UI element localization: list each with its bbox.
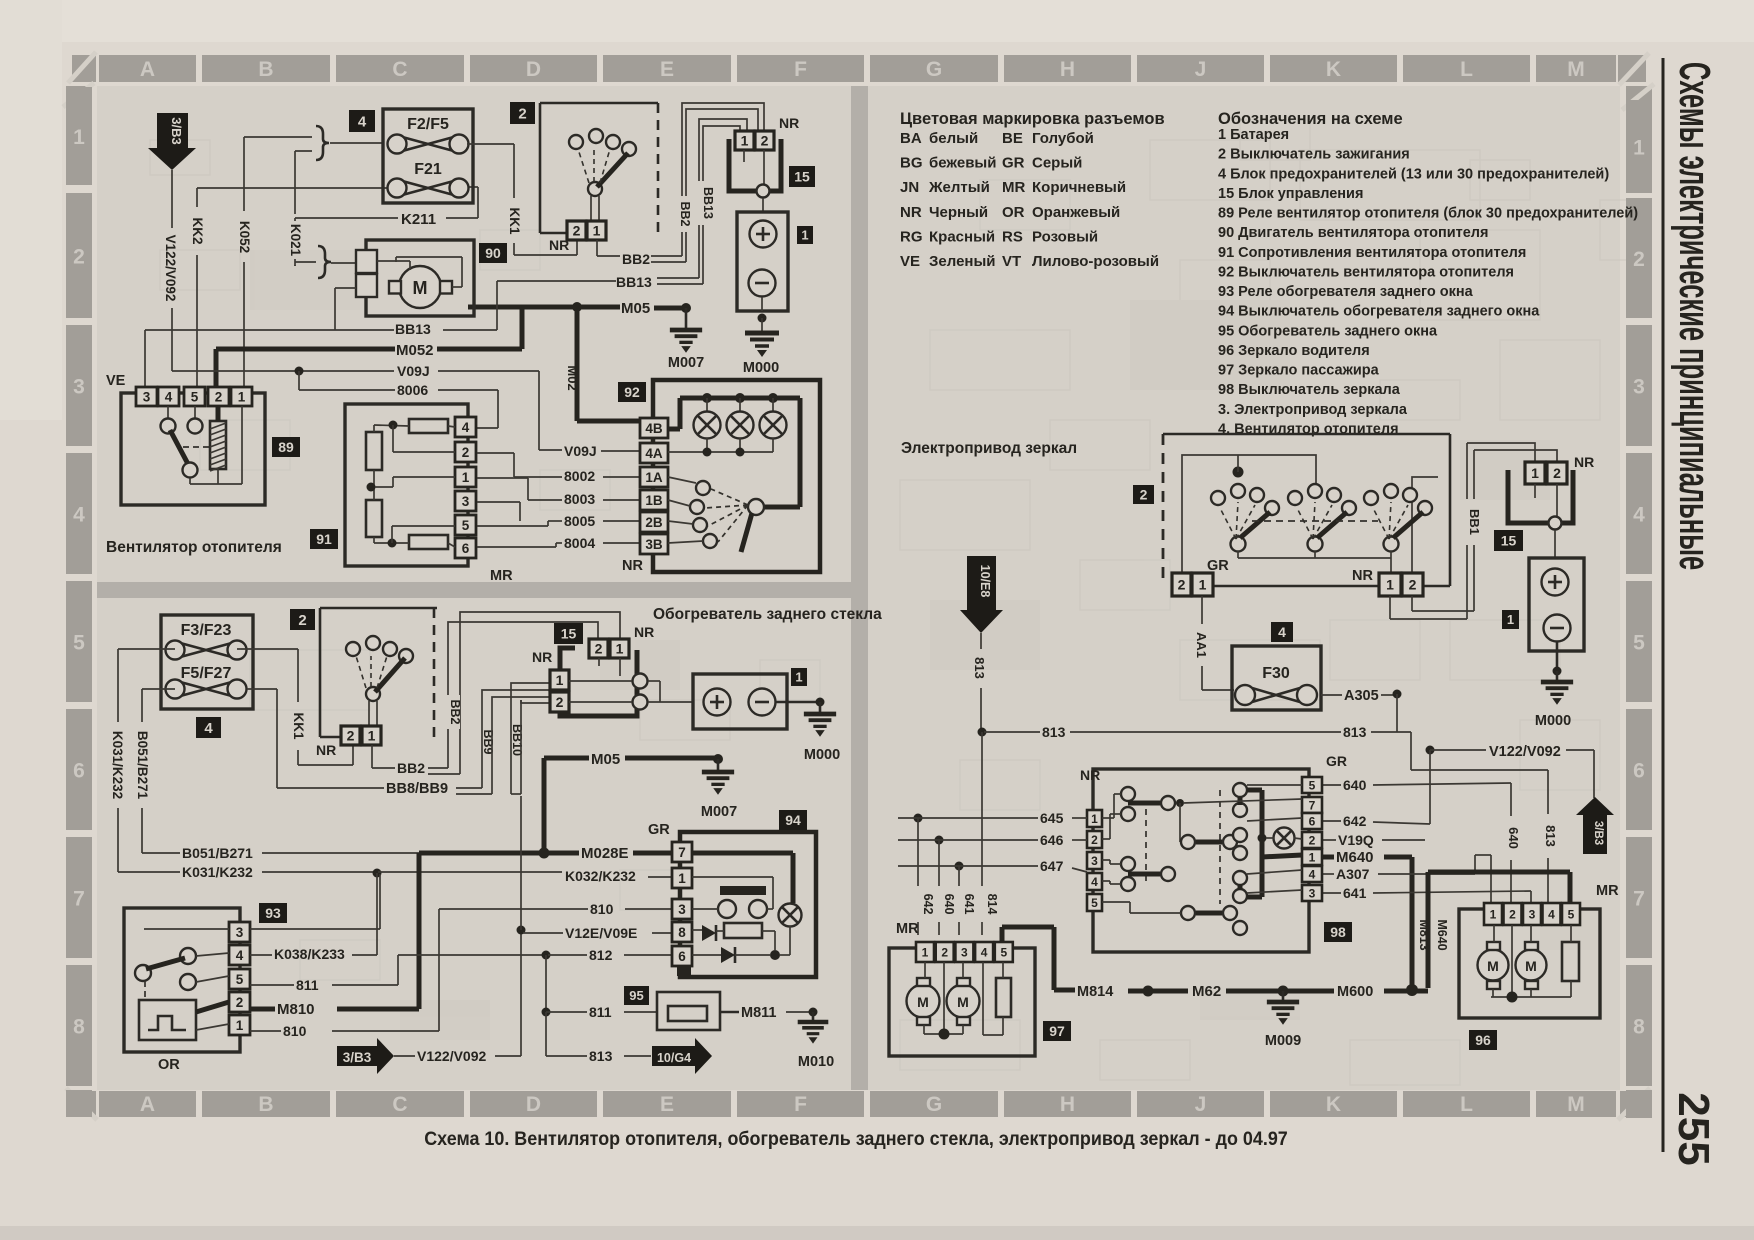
svg-text:бежевый: бежевый (929, 155, 996, 172)
svg-text:90: 90 (485, 245, 501, 261)
svg-text:642: 642 (1343, 813, 1367, 829)
svg-text:4: 4 (204, 720, 213, 737)
svg-text:1: 1 (616, 641, 624, 657)
svg-text:RS: RS (1002, 228, 1023, 245)
svg-text:1: 1 (1091, 812, 1098, 826)
svg-text:2: 2 (1509, 907, 1516, 921)
svg-text:M811: M811 (741, 1005, 776, 1021)
svg-text:NR: NR (1352, 568, 1373, 584)
svg-text:5: 5 (236, 972, 244, 987)
svg-text:A: A (140, 1093, 155, 1116)
svg-text:Коричневый: Коричневый (1032, 179, 1126, 196)
svg-text:BG: BG (900, 155, 923, 172)
svg-text:4: 4 (981, 945, 988, 959)
svg-text:92 Выключатель вентилятора ото: 92 Выключатель вентилятора отопителя (1218, 264, 1514, 280)
svg-text:M62: M62 (1192, 983, 1221, 1000)
svg-text:94 Выключатель обогревателя за: 94 Выключатель обогревателя заднего окна (1218, 304, 1540, 320)
svg-text:813: 813 (1343, 724, 1367, 740)
svg-text:Схемы электрические принципиал: Схемы электрические принципиальные (1670, 62, 1720, 570)
svg-text:2B: 2B (645, 515, 663, 530)
svg-text:MR: MR (1002, 179, 1025, 196)
svg-text:4: 4 (165, 389, 173, 404)
svg-text:1: 1 (1386, 577, 1394, 593)
svg-text:7: 7 (678, 845, 686, 860)
svg-text:1: 1 (1507, 612, 1514, 627)
svg-text:Черный: Черный (929, 204, 988, 221)
svg-text:M05: M05 (621, 300, 650, 317)
svg-text:F2/F5: F2/F5 (407, 116, 449, 133)
svg-text:8003: 8003 (564, 491, 595, 507)
svg-text:8: 8 (1633, 1016, 1645, 1039)
svg-text:Розовый: Розовый (1032, 228, 1098, 245)
svg-text:3: 3 (1633, 376, 1645, 399)
svg-text:812: 812 (589, 947, 613, 963)
svg-text:F30: F30 (1262, 665, 1290, 682)
svg-text:J: J (1195, 58, 1207, 81)
svg-text:B051/B271: B051/B271 (182, 845, 253, 861)
svg-text:J: J (1195, 1093, 1207, 1116)
svg-text:JN: JN (900, 179, 919, 196)
svg-text:1: 1 (1309, 850, 1316, 864)
svg-text:4: 4 (1633, 504, 1645, 527)
svg-text:1B: 1B (645, 493, 663, 508)
svg-text:MR: MR (1596, 883, 1619, 899)
svg-text:M000: M000 (743, 360, 779, 376)
svg-text:K031/K232: K031/K232 (110, 731, 125, 799)
svg-text:OR: OR (1002, 204, 1025, 221)
svg-text:1: 1 (1490, 907, 1497, 921)
svg-text:641: 641 (962, 894, 976, 915)
svg-text:M: M (957, 994, 969, 1010)
svg-text:K211: K211 (401, 211, 436, 228)
svg-text:4: 4 (358, 113, 367, 130)
svg-text:4: 4 (1548, 907, 1555, 921)
svg-text:MR: MR (490, 568, 513, 584)
svg-text:BB2: BB2 (622, 251, 650, 267)
svg-text:B: B (258, 58, 273, 81)
svg-text:3: 3 (73, 376, 85, 399)
svg-text:BB2: BB2 (448, 699, 462, 724)
svg-text:811: 811 (296, 977, 319, 993)
svg-text:K: K (1326, 58, 1341, 81)
svg-text:3: 3 (143, 389, 151, 404)
svg-text:15 Блок управления: 15 Блок управления (1218, 186, 1363, 202)
svg-text:NR: NR (1080, 767, 1100, 783)
svg-text:Электропривод зеркал: Электропривод зеркал (901, 440, 1077, 457)
svg-text:M052: M052 (396, 342, 434, 359)
svg-text:5: 5 (191, 389, 199, 404)
svg-text:90 Двигатель вентилятора отопи: 90 Двигатель вентилятора отопителя (1218, 225, 1488, 241)
svg-text:2: 2 (1309, 833, 1316, 847)
svg-text:4: 4 (1278, 624, 1286, 640)
svg-text:1: 1 (556, 672, 564, 688)
svg-text:95: 95 (629, 988, 643, 1003)
svg-text:M010: M010 (798, 1054, 834, 1070)
svg-text:5: 5 (1309, 778, 1316, 792)
svg-text:M: M (1567, 1093, 1585, 1116)
svg-text:3/В3: 3/В3 (343, 1050, 372, 1065)
svg-text:V12E/V09E: V12E/V09E (565, 925, 637, 941)
svg-text:M028E: M028E (581, 845, 629, 862)
svg-text:F21: F21 (414, 161, 442, 178)
svg-text:F5/F27: F5/F27 (181, 665, 232, 682)
svg-text:E: E (660, 58, 674, 81)
svg-text:98: 98 (1330, 924, 1346, 940)
svg-text:641: 641 (1343, 885, 1367, 901)
svg-text:640: 640 (1506, 827, 1521, 849)
svg-text:RG: RG (900, 228, 923, 245)
svg-text:3: 3 (678, 902, 686, 917)
svg-text:1: 1 (462, 470, 470, 485)
svg-text:4: 4 (462, 420, 470, 435)
svg-text:белый: белый (929, 130, 978, 147)
svg-text:NR: NR (622, 558, 643, 574)
svg-text:5: 5 (1000, 945, 1007, 959)
svg-text:NR: NR (532, 649, 552, 665)
svg-text:KK1: KK1 (291, 712, 306, 739)
svg-text:1 Батарея: 1 Батарея (1218, 127, 1289, 143)
svg-text:6: 6 (73, 760, 85, 783)
svg-text:G: G (926, 1093, 942, 1116)
svg-text:2: 2 (1178, 577, 1186, 593)
svg-text:92: 92 (624, 384, 640, 400)
svg-text:1: 1 (236, 1018, 244, 1033)
svg-text:4: 4 (73, 504, 85, 527)
svg-text:6: 6 (1309, 814, 1316, 828)
svg-text:2: 2 (215, 389, 223, 404)
svg-text:M814: M814 (1077, 984, 1113, 1000)
svg-text:H: H (1060, 1093, 1075, 1116)
svg-text:642: 642 (921, 894, 935, 915)
svg-text:BB2: BB2 (678, 201, 692, 226)
svg-text:NR: NR (316, 742, 336, 758)
svg-text:4A: 4A (645, 446, 663, 461)
svg-text:F: F (794, 1093, 807, 1116)
svg-text:2: 2 (1409, 577, 1417, 593)
svg-text:3/В3: 3/В3 (1592, 821, 1604, 845)
svg-text:640: 640 (1343, 777, 1367, 793)
svg-text:Обозначения на схеме: Обозначения на схеме (1218, 110, 1403, 128)
svg-text:Зеленый: Зеленый (929, 253, 996, 270)
svg-text:93 Реле обогревателя заднего о: 93 Реле обогревателя заднего окна (1218, 284, 1474, 300)
svg-text:91 Сопротивления вентилятора о: 91 Сопротивления вентилятора отопителя (1218, 245, 1526, 261)
svg-text:1: 1 (741, 133, 749, 149)
svg-text:Голубой: Голубой (1032, 130, 1094, 147)
svg-text:98 Выключатель зеркала: 98 Выключатель зеркала (1218, 382, 1401, 398)
svg-text:3B: 3B (645, 537, 663, 552)
svg-text:B: B (258, 1093, 273, 1116)
svg-text:Цветовая маркировка разъемов: Цветовая маркировка разъемов (900, 110, 1165, 128)
svg-text:4: 4 (1309, 867, 1316, 881)
svg-text:4B: 4B (645, 421, 663, 436)
svg-text:MR: MR (896, 921, 919, 937)
svg-text:F: F (794, 58, 807, 81)
svg-text:M810: M810 (277, 1001, 315, 1018)
svg-text:813: 813 (972, 657, 987, 679)
svg-text:NR: NR (900, 204, 922, 221)
svg-text:2: 2 (298, 612, 306, 629)
svg-text:C: C (392, 1093, 407, 1116)
svg-text:2: 2 (1091, 833, 1098, 847)
svg-text:Вентилятор отопителя: Вентилятор отопителя (106, 539, 282, 556)
svg-text:15: 15 (794, 169, 810, 185)
svg-text:1: 1 (922, 945, 929, 959)
svg-text:3: 3 (462, 494, 470, 509)
svg-text:1A: 1A (645, 470, 663, 485)
svg-text:M05: M05 (591, 751, 620, 768)
svg-text:2: 2 (518, 105, 526, 122)
svg-text:89 Реле вентилятор отопителя (: 89 Реле вентилятор отопителя (блок 30 пр… (1218, 206, 1638, 222)
svg-text:M600: M600 (1337, 984, 1373, 1000)
svg-text:F3/F23: F3/F23 (181, 622, 232, 639)
svg-text:GR: GR (648, 822, 670, 838)
svg-text:8002: 8002 (564, 468, 595, 484)
svg-text:K032/K232: K032/K232 (565, 868, 636, 884)
svg-text:1: 1 (801, 228, 808, 243)
svg-text:2: 2 (347, 728, 355, 744)
svg-text:2: 2 (1633, 248, 1645, 271)
svg-text:647: 647 (1040, 858, 1064, 874)
svg-text:3: 3 (961, 945, 968, 959)
svg-text:BB10: BB10 (510, 724, 524, 756)
svg-text:15: 15 (1501, 533, 1517, 549)
svg-text:1: 1 (678, 871, 686, 886)
svg-text:L: L (1460, 58, 1473, 81)
svg-text:L: L (1460, 1093, 1473, 1116)
svg-text:1: 1 (593, 223, 601, 239)
svg-text:3: 3 (1091, 854, 1098, 868)
svg-text:2: 2 (236, 995, 244, 1010)
svg-text:VE: VE (106, 373, 126, 389)
svg-text:M: M (413, 278, 428, 298)
svg-text:1: 1 (368, 728, 376, 744)
svg-text:M009: M009 (1265, 1033, 1301, 1049)
svg-text:BB13: BB13 (395, 321, 431, 337)
svg-text:1: 1 (1633, 137, 1645, 160)
svg-text:640: 640 (942, 894, 956, 915)
svg-text:K: K (1326, 1093, 1341, 1116)
svg-text:Красный: Красный (929, 228, 995, 245)
svg-text:M640: M640 (1435, 919, 1449, 950)
svg-text:NR: NR (1574, 454, 1594, 470)
svg-text:K021: K021 (288, 224, 303, 257)
svg-text:BB13: BB13 (616, 274, 652, 290)
svg-text:8: 8 (73, 1016, 85, 1039)
svg-text:4: 4 (236, 948, 244, 963)
svg-text:NR: NR (549, 237, 569, 253)
svg-text:813: 813 (1042, 724, 1066, 740)
svg-text:A305: A305 (1344, 688, 1379, 704)
svg-text:5: 5 (1568, 907, 1575, 921)
svg-text:810: 810 (283, 1023, 307, 1039)
svg-text:5: 5 (1091, 896, 1098, 910)
svg-text:M640: M640 (1336, 849, 1374, 866)
svg-text:V122/V092: V122/V092 (417, 1048, 486, 1064)
svg-text:15: 15 (561, 626, 577, 642)
svg-text:V19Q: V19Q (1338, 832, 1374, 848)
svg-text:M000: M000 (1535, 713, 1571, 729)
svg-text:E: E (660, 1093, 674, 1116)
svg-text:Желтый: Желтый (928, 179, 990, 196)
svg-text:5: 5 (1633, 632, 1645, 655)
svg-text:GR: GR (1002, 155, 1025, 172)
svg-text:2: 2 (941, 945, 948, 959)
svg-text:Серый: Серый (1032, 155, 1082, 172)
svg-text:V09J: V09J (397, 363, 430, 379)
svg-text:2: 2 (1553, 465, 1561, 481)
svg-text:K031/K232: K031/K232 (182, 864, 253, 880)
svg-text:M813: M813 (1417, 919, 1431, 950)
svg-text:M007: M007 (668, 355, 704, 371)
svg-text:6: 6 (462, 541, 470, 556)
svg-text:3: 3 (1529, 907, 1536, 921)
svg-text:A: A (140, 58, 155, 81)
svg-text:A307: A307 (1336, 866, 1370, 882)
svg-text:V122/V092: V122/V092 (1489, 744, 1561, 760)
svg-text:H: H (1060, 58, 1075, 81)
svg-text:813: 813 (1543, 825, 1558, 847)
svg-text:Оранжевый: Оранжевый (1032, 204, 1120, 221)
svg-text:VE: VE (900, 253, 920, 270)
svg-text:89: 89 (278, 439, 294, 455)
svg-text:91: 91 (316, 531, 332, 547)
svg-text:Обогреватель заднего стекла: Обогреватель заднего стекла (653, 606, 882, 623)
svg-text:M: M (1525, 958, 1537, 974)
svg-text:M000: M000 (804, 747, 840, 763)
svg-text:1: 1 (73, 126, 85, 149)
svg-text:1: 1 (1199, 577, 1207, 593)
svg-text:2: 2 (573, 223, 581, 239)
svg-text:97: 97 (1049, 1023, 1065, 1039)
svg-text:10/Е8: 10/Е8 (978, 565, 992, 598)
svg-text:255: 255 (1669, 1092, 1718, 1165)
svg-text:96 Зеркало водителя: 96 Зеркало водителя (1218, 343, 1370, 359)
svg-text:5: 5 (462, 518, 470, 533)
svg-text:M: M (1487, 958, 1499, 974)
svg-text:3: 3 (236, 925, 244, 940)
svg-text:4 Блок предохранителей (13 или: 4 Блок предохранителей (13 или 30 предох… (1218, 166, 1609, 182)
svg-text:3. Электропривод зеркала: 3. Электропривод зеркала (1218, 402, 1408, 418)
svg-text:B051/B271: B051/B271 (135, 731, 150, 800)
svg-text:1: 1 (1531, 465, 1539, 481)
svg-text:D: D (526, 58, 541, 81)
svg-text:KK2: KK2 (190, 217, 205, 244)
svg-text:V122/V092: V122/V092 (163, 235, 178, 302)
svg-text:Схема 10. Вентилятор отопителя: Схема 10. Вентилятор отопителя, обогрева… (424, 1127, 1288, 1149)
svg-text:M: M (1567, 58, 1585, 81)
svg-text:K052: K052 (237, 221, 252, 253)
svg-text:8005: 8005 (564, 513, 595, 529)
svg-text:BB9: BB9 (481, 729, 495, 754)
svg-text:811: 811 (589, 1004, 612, 1020)
svg-text:645: 645 (1040, 810, 1064, 826)
svg-text:VT: VT (1002, 253, 1021, 270)
svg-text:10/G4: 10/G4 (657, 1051, 691, 1065)
svg-text:BA: BA (900, 130, 922, 147)
svg-text:7: 7 (73, 888, 85, 911)
svg-text:814: 814 (985, 894, 999, 915)
svg-text:V09J: V09J (564, 443, 597, 459)
svg-text:2: 2 (73, 246, 85, 269)
svg-text:NR: NR (634, 624, 654, 640)
svg-text:93: 93 (265, 905, 281, 921)
svg-text:G: G (926, 58, 942, 81)
svg-text:97 Зеркало пассажира: 97 Зеркало пассажира (1218, 363, 1380, 379)
svg-text:M02: M02 (565, 365, 580, 390)
svg-text:5: 5 (73, 632, 85, 655)
svg-text:GR: GR (1326, 753, 1347, 769)
svg-text:Лилово-розовый: Лилово-розовый (1032, 253, 1159, 270)
svg-text:BE: BE (1002, 130, 1023, 147)
svg-text:3/B3: 3/B3 (169, 117, 184, 144)
svg-text:2: 2 (1140, 487, 1148, 503)
svg-text:2 Выключатель зажигания: 2 Выключатель зажигания (1218, 147, 1410, 163)
svg-text:1: 1 (238, 389, 246, 404)
svg-text:6: 6 (1633, 760, 1645, 783)
svg-text:AA1: AA1 (1194, 632, 1209, 658)
svg-text:BB8/BB9: BB8/BB9 (386, 781, 448, 797)
svg-text:2: 2 (595, 641, 603, 657)
svg-text:BB2: BB2 (397, 760, 425, 776)
svg-text:D: D (526, 1093, 541, 1116)
svg-text:8: 8 (678, 925, 686, 940)
svg-text:K038/K233: K038/K233 (274, 946, 345, 962)
svg-text:96: 96 (1475, 1032, 1491, 1048)
svg-text:2: 2 (462, 445, 470, 460)
svg-text:7: 7 (1633, 888, 1645, 911)
svg-text:2: 2 (556, 694, 564, 710)
svg-text:810: 810 (590, 901, 614, 917)
svg-text:2: 2 (761, 133, 769, 149)
svg-text:7: 7 (1309, 798, 1316, 812)
svg-text:BB13: BB13 (701, 187, 715, 219)
svg-text:813: 813 (589, 1048, 613, 1064)
svg-text:8004: 8004 (564, 535, 595, 551)
svg-text:6: 6 (678, 949, 686, 964)
svg-text:NR: NR (779, 115, 799, 131)
svg-text:C: C (392, 58, 407, 81)
svg-text:KK1: KK1 (507, 207, 522, 234)
svg-text:4: 4 (1091, 875, 1098, 889)
svg-text:1: 1 (795, 670, 802, 685)
svg-text:M007: M007 (701, 804, 737, 820)
svg-text:95 Обогреватель заднего окна: 95 Обогреватель заднего окна (1218, 323, 1438, 339)
svg-text:OR: OR (158, 1057, 180, 1073)
svg-text:M: M (917, 994, 929, 1010)
svg-text:646: 646 (1040, 832, 1064, 848)
svg-text:3: 3 (1309, 886, 1316, 900)
svg-text:94: 94 (785, 812, 801, 828)
svg-text:8006: 8006 (397, 382, 428, 398)
svg-text:BB1: BB1 (1467, 509, 1482, 535)
